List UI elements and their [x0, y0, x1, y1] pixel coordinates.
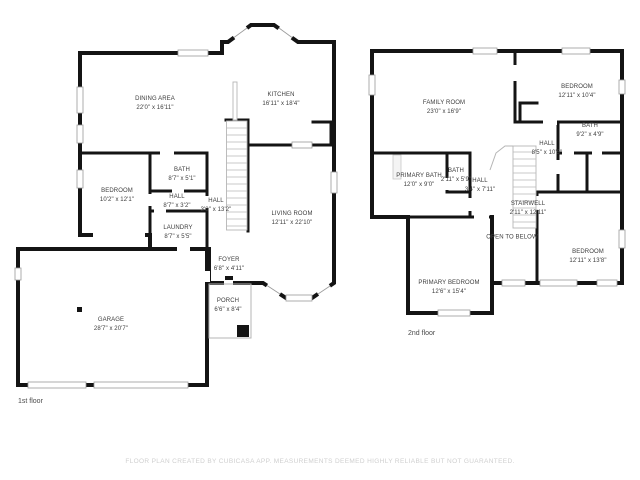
room-dims: 8'7" x 5'5" — [163, 233, 192, 242]
room-label-porch: PORCH 6'6" x 8'4" — [214, 297, 241, 315]
room-label-open-to-below: OPEN TO BELOW — [486, 234, 537, 243]
room-dims: 8'5" x 10'5" — [532, 149, 563, 158]
room-dims: 28'7" x 20'7" — [94, 325, 128, 334]
room-name: FOYER — [214, 256, 244, 265]
room-dims: 9'2" x 4'9" — [576, 131, 603, 140]
room-name: PRIMARY BATH — [396, 172, 442, 181]
room-label-hall-1f: HALL 8'7" x 3'2" — [163, 193, 190, 211]
room-label-bedroom-2f-top: BEDROOM 12'11" x 10'4" — [558, 83, 595, 101]
room-label-living-room: LIVING ROOM 12'11" x 22'10" — [271, 210, 312, 228]
door-openings — [93, 150, 233, 286]
room-name: HALL — [532, 140, 563, 149]
exterior-walls-left — [80, 53, 150, 249]
footer-disclaimer: FLOOR PLAN CREATED BY CUBICASA APP. MEAS… — [0, 458, 640, 465]
room-name: BATH — [576, 122, 603, 131]
room-dims: 12'11" x 10'4" — [558, 92, 595, 101]
room-label-foyer: FOYER 6'8" x 4'11" — [214, 256, 244, 274]
room-dims: 12'11" x 22'10" — [271, 219, 312, 228]
room-name: BEDROOM — [100, 187, 134, 196]
porch-post — [237, 325, 249, 337]
room-dims: 3'8" x 13'2" — [201, 206, 232, 215]
room-label-family-room: FAMILY ROOM 23'0" x 16'9" — [423, 99, 465, 117]
floorplan-page: DINING AREA 22'0" x 16'11" KITCHEN 16'11… — [0, 0, 640, 480]
first-floor-label: 1st floor — [18, 398, 43, 405]
room-name: OPEN TO BELOW — [486, 234, 537, 243]
room-dims: 12'11" x 13'8" — [569, 257, 606, 266]
room-label-hall-stairs-1f: HALL 3'8" x 13'2" — [201, 197, 232, 215]
room-label-primary-bedroom: PRIMARY BEDROOM 12'6" x 15'4" — [418, 279, 479, 297]
room-name: BEDROOM — [569, 248, 606, 257]
room-name: HALL — [201, 197, 232, 206]
front-door — [225, 276, 233, 280]
room-name: KITCHEN — [262, 91, 299, 100]
room-dims: 8'7" x 3'2" — [163, 202, 190, 211]
room-name: LAUNDRY — [163, 224, 192, 233]
room-name: STAIRWELL — [510, 200, 547, 209]
room-label-garage: GARAGE 28'7" x 20'7" — [94, 316, 128, 334]
room-label-primary-bath: PRIMARY BATH 12'0" x 9'0" — [396, 172, 442, 190]
second-floor-label: 2nd floor — [408, 330, 435, 337]
room-label-bedroom-2f-bottom: BEDROOM 12'11" x 13'8" — [569, 248, 606, 266]
room-name: PORCH — [214, 297, 241, 306]
garage-post — [77, 307, 82, 312]
room-dims: 23'0" x 16'9" — [423, 108, 465, 117]
room-name: BATH — [441, 167, 471, 176]
room-name: DINING AREA — [135, 95, 175, 104]
room-dims: 12'0" x 9'0" — [396, 181, 442, 190]
room-label-stairwell: STAIRWELL 2'11" x 12'11" — [510, 200, 547, 218]
room-name: LIVING ROOM — [271, 210, 312, 219]
room-dims: 3'4" x 7'11" — [465, 186, 495, 195]
room-dims: 10'2" x 12'1" — [100, 196, 134, 205]
room-label-hall-center-2f: HALL 3'4" x 7'11" — [465, 177, 495, 195]
room-name: GARAGE — [94, 316, 128, 325]
stair-railing — [490, 146, 513, 170]
room-name: HALL — [465, 177, 495, 186]
room-dims: 2'11" x 12'11" — [510, 209, 547, 218]
room-label-bedroom-1f: BEDROOM 10'2" x 12'1" — [100, 187, 134, 205]
room-dims: 6'6" x 8'4" — [214, 306, 241, 315]
room-name: BEDROOM — [558, 83, 595, 92]
room-dims: 16'11" x 18'4" — [262, 100, 299, 109]
room-dims: 8'7" x 5'1" — [168, 175, 195, 184]
room-label-kitchen: KITCHEN 16'11" x 18'4" — [262, 91, 299, 109]
room-dims: 22'0" x 16'11" — [135, 104, 175, 113]
room-label-bath-1f: BATH 8'7" x 5'1" — [168, 166, 195, 184]
room-label-dining-area: DINING AREA 22'0" x 16'11" — [135, 95, 175, 113]
room-name: FAMILY ROOM — [423, 99, 465, 108]
room-dims: 12'6" x 15'4" — [418, 288, 479, 297]
kitchen-half-wall — [233, 82, 237, 120]
room-label-laundry: LAUNDRY 8'7" x 5'5" — [163, 224, 192, 242]
room-label-hall-2f: HALL 8'5" x 10'5" — [532, 140, 563, 158]
room-name: HALL — [163, 193, 190, 202]
room-name: PRIMARY BEDROOM — [418, 279, 479, 288]
floorplan-drawing — [0, 0, 640, 480]
room-dims: 6'8" x 4'11" — [214, 265, 244, 274]
room-label-bath-2f: BATH 9'2" x 4'9" — [576, 122, 603, 140]
room-name: BATH — [168, 166, 195, 175]
interior-walls — [80, 120, 334, 249]
